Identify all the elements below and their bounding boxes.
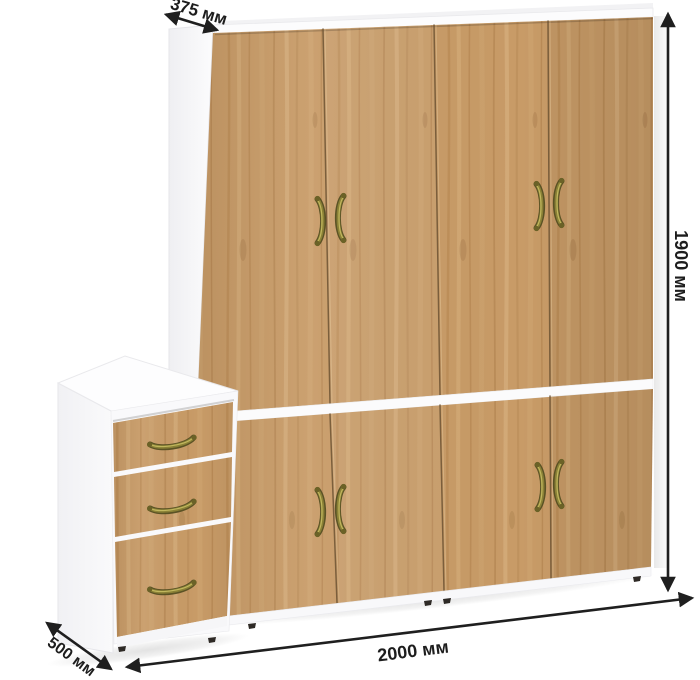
wardrobe-lower-door-2-tone	[330, 405, 444, 603]
dimension-label-height: 1900 мм	[671, 230, 691, 302]
wardrobe-lower-door-4-tone	[550, 389, 653, 579]
drawer-cabinet	[58, 356, 238, 653]
furniture-render: 375 мм 1900 мм 2000 мм 500 мм	[0, 0, 700, 680]
product-diagram: 375 мм 1900 мм 2000 мм 500 мм	[0, 0, 700, 680]
wardrobe-upper-door-4-tone	[548, 17, 653, 387]
cabinet-left-side-panel	[58, 383, 113, 653]
cabinet-drawers	[113, 402, 233, 637]
dimension-label-width: 2000 мм	[376, 637, 450, 666]
wardrobe	[169, 3, 653, 629]
